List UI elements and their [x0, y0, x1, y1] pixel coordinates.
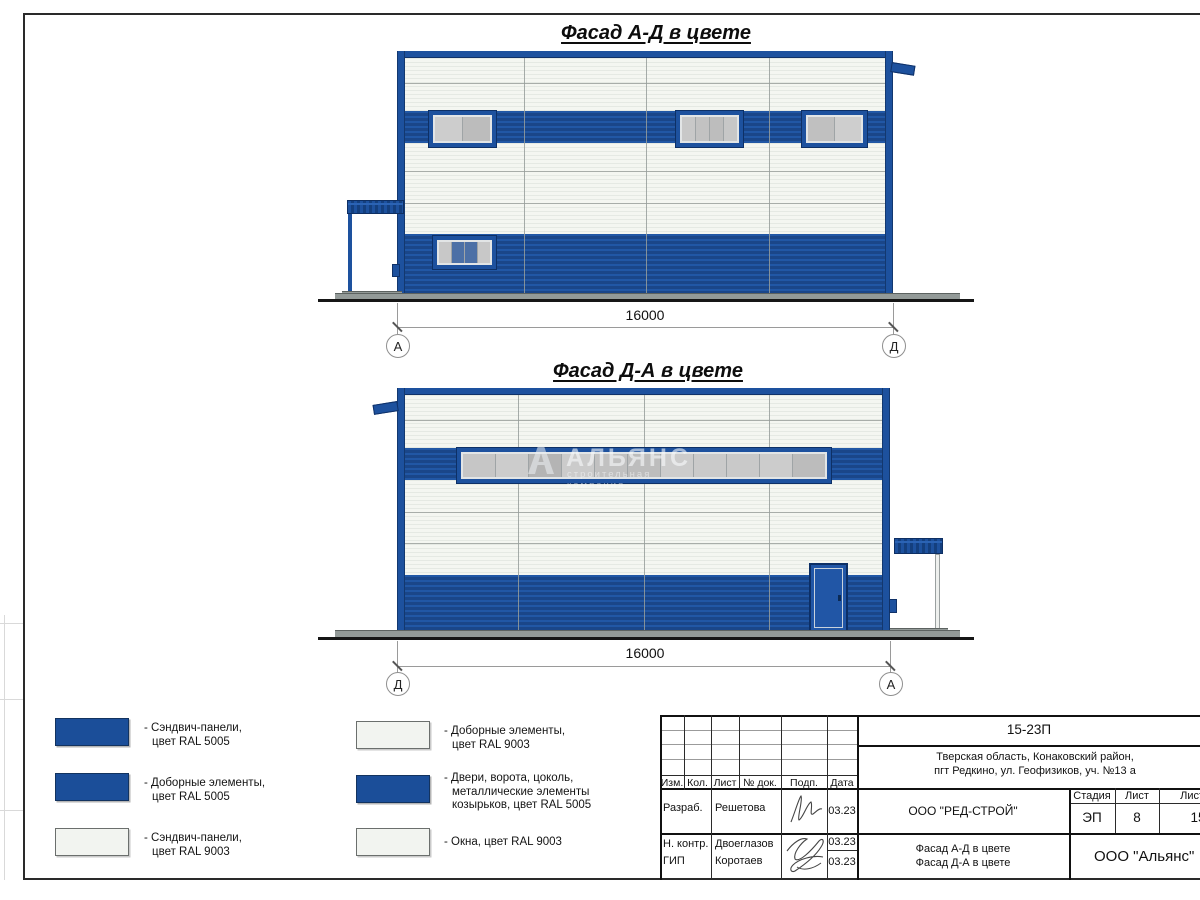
row-date: 03.23	[827, 805, 857, 817]
titleblock-line	[857, 715, 859, 880]
row-date: 03.23	[827, 856, 857, 868]
titleblock-line	[660, 715, 662, 880]
titleblock-line	[711, 715, 712, 880]
row-name: Решетова	[715, 802, 765, 814]
row-date: 03.23	[827, 836, 857, 848]
row-role: Н. контр.	[663, 838, 708, 850]
col-list: Лист	[711, 777, 739, 789]
row-name: Коротаев	[715, 855, 763, 867]
doc-number: 15-23П	[929, 722, 1129, 737]
content-line2: Фасад Д-А в цвете	[857, 857, 1069, 869]
customer-org: ООО "Альянс"	[1094, 848, 1194, 865]
title-block: Изм. Кол. Лист № док. Подп. Дата Разраб.…	[0, 0, 1200, 900]
sheet-label: Лист	[1115, 790, 1159, 802]
titleblock-line	[827, 850, 857, 851]
signature	[783, 833, 829, 877]
design-company: ООО "РЕД-СТРОЙ"	[857, 804, 1069, 818]
sheets-value: 15	[1159, 810, 1200, 825]
stage-value: ЭП	[1069, 810, 1115, 825]
row-role: Разраб.	[663, 802, 703, 814]
col-data: Дата	[827, 777, 857, 789]
object-address-line1: Тверская область, Конаковский район,	[855, 751, 1200, 763]
titleblock-line	[781, 715, 782, 880]
sheet-value: 8	[1115, 810, 1159, 825]
row-name: Двоеглазов	[715, 838, 773, 850]
object-address-line2: пгт Редкино, ул. Геофизиков, уч. №13 а	[855, 765, 1200, 777]
col-izm: Изм.	[660, 777, 684, 789]
sheets-label: Листов	[1159, 790, 1200, 802]
drawing-sheet: Фасад А-Д в цвете	[0, 0, 1200, 900]
row-role: ГИП	[663, 855, 685, 867]
content-line1: Фасад А-Д в цвете	[857, 843, 1069, 855]
stage-label: Стадия	[1069, 790, 1115, 802]
titleblock-line	[1069, 803, 1200, 804]
titleblock-line	[857, 745, 1200, 747]
col-doc: № док.	[739, 777, 781, 789]
col-podp: Подп.	[781, 777, 827, 789]
signature	[785, 792, 825, 830]
col-kol: Кол.	[684, 777, 711, 789]
titleblock-line	[660, 833, 1200, 835]
titleblock-line	[660, 715, 1200, 717]
